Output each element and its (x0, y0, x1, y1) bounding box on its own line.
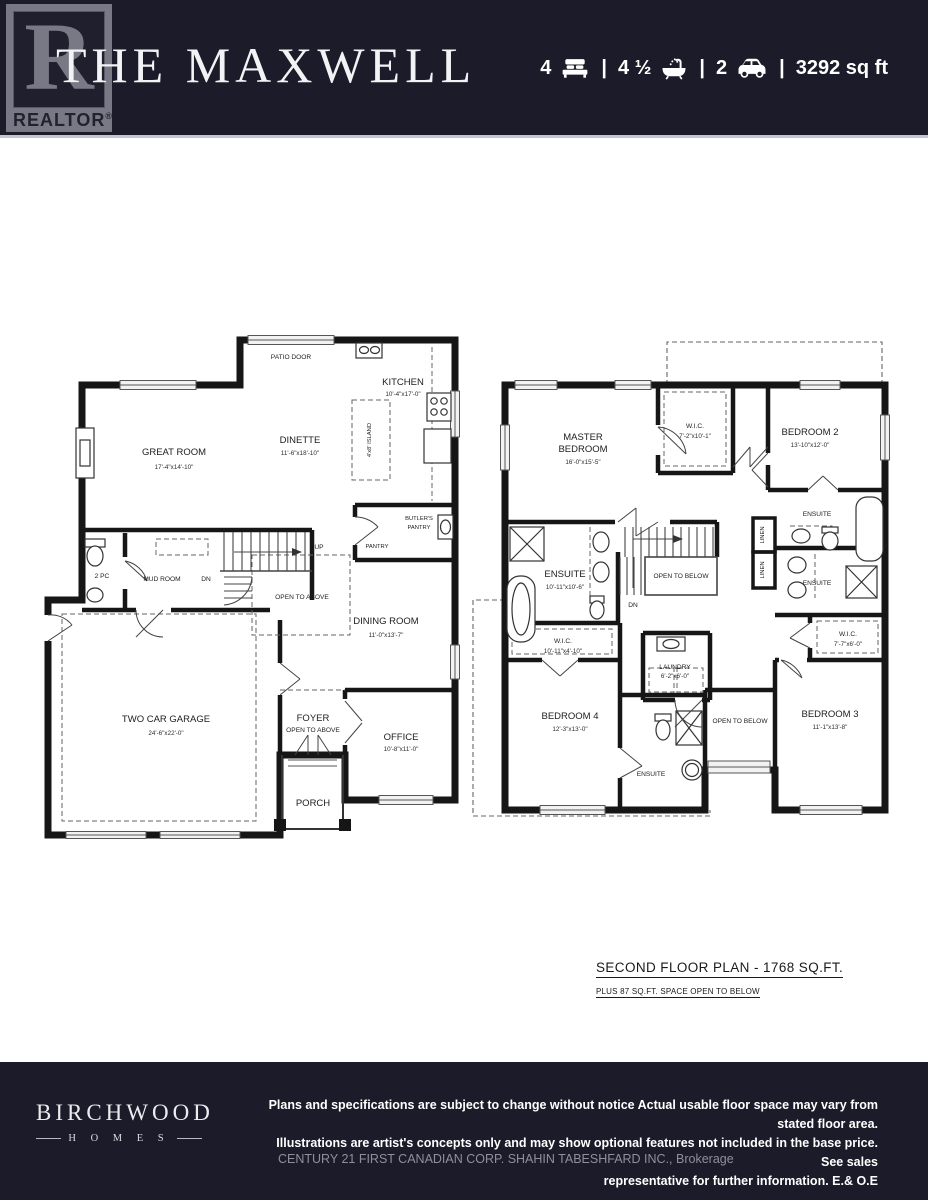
label-bedroom2: BEDROOM 2 (781, 427, 838, 438)
footer-band: BIRCHWOOD H O M E S Plans and specificat… (0, 1062, 928, 1200)
header-band: R REALTOR® THE MAXWELL 4 | 4 ½ (0, 0, 928, 138)
label-butlers-1: BUTLER'S (405, 516, 433, 522)
porch-structure (274, 755, 351, 831)
home-stats: 4 | 4 ½ (540, 56, 888, 80)
label-dn: DN (628, 602, 638, 609)
label-master-2: BEDROOM (558, 444, 607, 455)
label-foyer-sub: OPEN TO ABOVE (286, 727, 340, 734)
label-pantry: PANTRY (366, 544, 389, 550)
first-floor-plan: PATIO DOOR KITCHEN 10'-4"x17'-0" DINETTE… (38, 333, 462, 843)
label-wic3: W.I.C. (839, 631, 857, 638)
label-porch: PORCH (296, 798, 330, 809)
label-ensuite4: ENSUITE (637, 771, 666, 778)
staircase (620, 527, 717, 595)
second-floor-caption: SECOND FLOOR PLAN - 1768 SQ.FT. PLUS 87 … (596, 959, 843, 999)
realtor-word: REALTOR (13, 110, 105, 130)
stat-separator: | (699, 57, 705, 80)
disclaimer: Plans and specifications are subject to … (258, 1096, 878, 1191)
label-wic-master-dims: 7'-2"x10'-1" (679, 433, 711, 440)
caption-subtitle: PLUS 87 SQ.FT. SPACE OPEN TO BELOW (596, 987, 760, 998)
label-dining-dims: 11'-0"x13'-7" (369, 632, 404, 639)
stat-separator: | (601, 57, 607, 80)
label-mud-room: MUD ROOM (143, 576, 180, 583)
label-foyer: FOYER (297, 713, 330, 724)
label-master-ensuite: ENSUITE (544, 569, 585, 580)
label-kitchen: KITCHEN (382, 377, 424, 388)
label-dinette: DINETTE (280, 435, 321, 446)
cars-count: 2 (716, 57, 727, 80)
label-wic4-dims: 10'-11"x4'-10" (544, 648, 582, 655)
sqft-value: 3292 sq ft (796, 57, 888, 80)
label-wic3-dims: 7'-7"x6'-0" (834, 641, 862, 648)
flyer-page: R REALTOR® THE MAXWELL 4 | 4 ½ (0, 0, 928, 1200)
registered-mark: ® (105, 111, 113, 121)
baths-count: 4 ½ (618, 57, 651, 80)
label-butlers-2: PANTRY (408, 525, 431, 531)
label-island: 4'x8' ISLAND (367, 423, 373, 457)
label-wic4: W.I.C. (554, 638, 572, 645)
label-master-dims: 16'-0"x15'-5" (565, 459, 600, 466)
second-floor-plan: MASTER BEDROOM 16'-0"x15'-5" W.I.C. 7'-2… (470, 330, 900, 865)
brand-subtitle-text: H O M E S (68, 1133, 169, 1144)
label-office: OFFICE (384, 732, 419, 743)
stat-separator: | (779, 57, 785, 80)
label-laundry-dims: 6'-2"x6'-0" (661, 673, 689, 680)
page-title: THE MAXWELL (56, 36, 476, 94)
beds-count: 4 (540, 57, 551, 80)
label-great-room-dims: 17'-4"x14'-10" (155, 464, 194, 471)
car-icon (736, 57, 768, 79)
label-office-dims: 10'-8"x11'-0" (384, 746, 419, 753)
birchwood-logo: BIRCHWOOD H O M E S (36, 1100, 202, 1144)
realtor-logo-label: REALTOR® (13, 110, 105, 131)
label-master-1: MASTER (563, 432, 603, 443)
brand-subtitle: H O M E S (36, 1133, 202, 1144)
label-open-below-center: OPEN TO BELOW (712, 718, 768, 725)
label-dinette-dims: 11'-6"x18'-10" (281, 450, 319, 457)
label-bedroom3-dims: 11'-1"x13'-8" (813, 724, 848, 731)
label-linen-1: LINEN (760, 526, 766, 543)
label-kitchen-dims: 10'-4"x17'-0" (385, 391, 420, 398)
bed-icon (560, 57, 590, 79)
brokerage-line: CENTURY 21 FIRST CANADIAN CORP. SHAHIN T… (278, 1152, 734, 1166)
label-patio-door: PATIO DOOR (271, 354, 312, 361)
disclaimer-line-3: representative for further information. … (258, 1172, 878, 1191)
label-master-ensuite-dims: 10'-11"x10'-6" (546, 584, 584, 591)
brand-name: BIRCHWOOD (36, 1100, 202, 1126)
label-garage-dims: 24'-6"x22'-0" (148, 730, 183, 737)
label-open-below-stairs: OPEN TO BELOW (653, 573, 709, 580)
label-2pc: 2 PC (95, 573, 110, 580)
label-bedroom3: BEDROOM 3 (801, 709, 858, 720)
label-bedroom2-dims: 13'-10"x12'-0" (791, 442, 830, 449)
label-bedroom4: BEDROOM 4 (541, 711, 598, 722)
label-bedroom4-dims: 12'-3"x13'-0" (552, 726, 587, 733)
label-dn: DN (201, 576, 211, 583)
label-laundry: LAUNDRY (659, 664, 691, 671)
caption-title: SECOND FLOOR PLAN - 1768 SQ.FT. (596, 960, 843, 978)
label-open-to-above: OPEN TO ABOVE (275, 594, 329, 601)
label-linen-2: LINEN (760, 561, 766, 578)
label-great-room: GREAT ROOM (142, 447, 206, 458)
label-dining: DINING ROOM (353, 616, 419, 627)
label-wic-master: W.I.C. (686, 423, 704, 430)
label-ensuite2: ENSUITE (803, 511, 832, 518)
label-ensuite3: ENSUITE (803, 580, 832, 587)
bath-icon (660, 56, 688, 80)
label-garage: TWO CAR GARAGE (122, 714, 210, 725)
disclaimer-line-1: Plans and specifications are subject to … (258, 1096, 878, 1134)
floor-plans-area: PATIO DOOR KITCHEN 10'-4"x17'-0" DINETTE… (0, 138, 928, 1062)
label-up: UP (314, 544, 324, 551)
